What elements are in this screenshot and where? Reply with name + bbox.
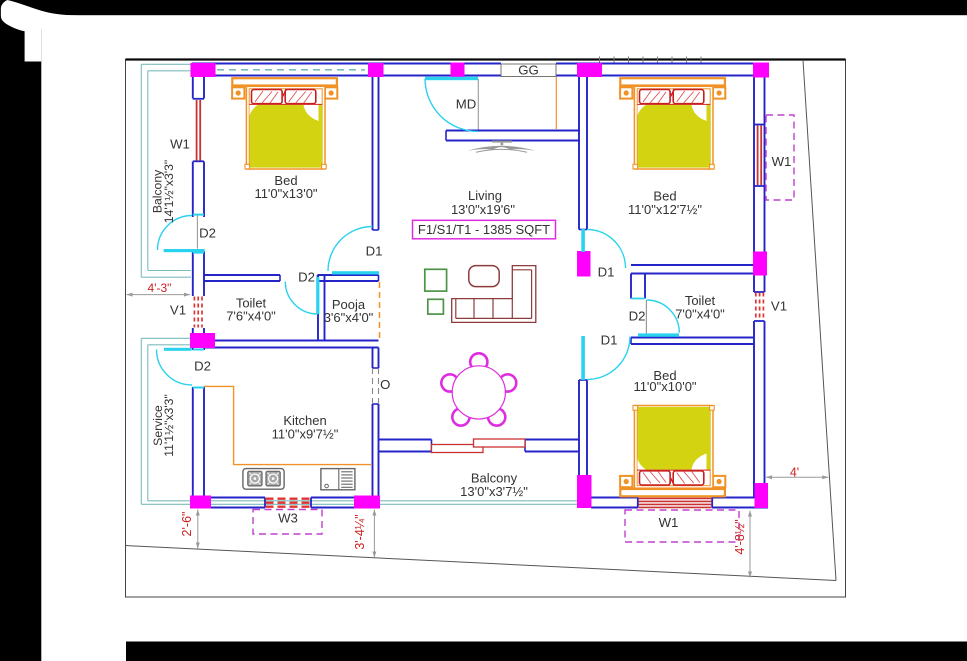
svg-text:7'6"x4'0": 7'6"x4'0" bbox=[226, 309, 276, 324]
svg-text:V1: V1 bbox=[170, 303, 186, 318]
svg-text:O: O bbox=[380, 377, 390, 392]
svg-text:W1: W1 bbox=[659, 515, 679, 530]
svg-text:11'0"x13'0": 11'0"x13'0" bbox=[254, 186, 317, 201]
svg-text:13'0"x3'7½": 13'0"x3'7½" bbox=[460, 484, 528, 499]
svg-text:13'0"x19'6": 13'0"x19'6" bbox=[451, 202, 515, 217]
svg-text:11'0"x12'7½": 11'0"x12'7½" bbox=[628, 202, 702, 217]
svg-text:4': 4' bbox=[790, 466, 799, 480]
svg-text:F1/S1/T1 - 1385 SQFT: F1/S1/T1 - 1385 SQFT bbox=[418, 222, 550, 237]
svg-text:Living: Living bbox=[468, 188, 502, 203]
svg-text:4'-3": 4'-3" bbox=[148, 281, 172, 295]
svg-text:D1: D1 bbox=[366, 244, 383, 259]
svg-text:W1: W1 bbox=[170, 137, 190, 152]
svg-text:W1: W1 bbox=[772, 154, 792, 169]
svg-text:D2: D2 bbox=[298, 270, 315, 285]
svg-text:V1: V1 bbox=[771, 299, 787, 314]
svg-text:11'0"x9'7½": 11'0"x9'7½" bbox=[272, 427, 339, 442]
svg-text:11'0"x10'0": 11'0"x10'0" bbox=[633, 379, 696, 394]
svg-text:4'-8½": 4'-8½" bbox=[733, 519, 747, 554]
svg-text:3'6"x4'0": 3'6"x4'0" bbox=[324, 310, 374, 325]
svg-text:11'1½"x3'3": 11'1½"x3'3" bbox=[162, 394, 176, 457]
svg-text:2'-6": 2'-6" bbox=[180, 512, 194, 537]
svg-text:W3: W3 bbox=[278, 511, 298, 526]
svg-text:D1: D1 bbox=[598, 265, 615, 280]
svg-text:MD: MD bbox=[456, 97, 477, 112]
svg-text:D2: D2 bbox=[194, 359, 211, 374]
svg-text:D1: D1 bbox=[601, 333, 618, 348]
svg-text:GG: GG bbox=[518, 63, 539, 78]
svg-text:3'-4¼": 3'-4¼" bbox=[353, 514, 367, 549]
svg-text:7'0"x4'0": 7'0"x4'0" bbox=[675, 307, 725, 322]
svg-text:D2: D2 bbox=[629, 309, 646, 324]
svg-text:D2: D2 bbox=[199, 226, 216, 241]
svg-text:14'1½"x3'3": 14'1½"x3'3" bbox=[162, 160, 176, 223]
